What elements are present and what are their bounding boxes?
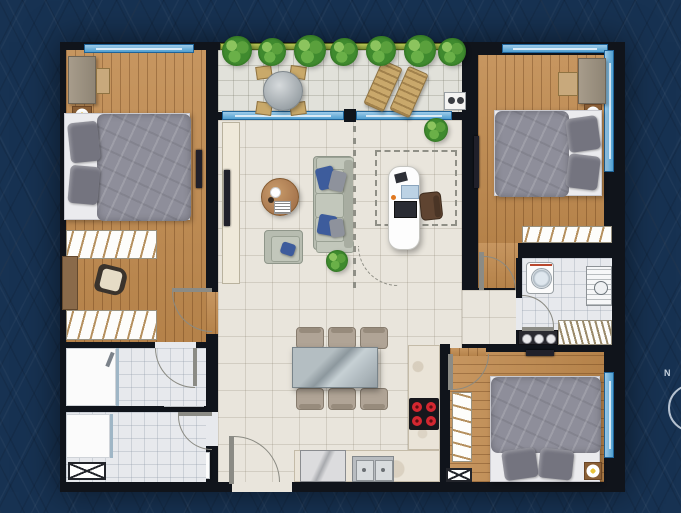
bedroom-1-bench bbox=[96, 68, 110, 94]
bedroom-3-wardrobe bbox=[452, 392, 472, 462]
drying-rack bbox=[558, 320, 612, 345]
master-wardrobe-hatched bbox=[522, 226, 612, 243]
compass-ring bbox=[668, 384, 681, 432]
counter-ring bbox=[546, 334, 556, 344]
bathroom-2-shaft-box bbox=[68, 462, 106, 480]
sink-drain bbox=[362, 468, 366, 472]
cooktop-burner bbox=[412, 416, 422, 426]
living-room-tv bbox=[224, 170, 230, 226]
chair-backrest bbox=[433, 195, 441, 218]
master-bed bbox=[494, 110, 602, 196]
desk-camera bbox=[394, 172, 408, 184]
compass-north-label: N bbox=[664, 368, 671, 378]
coffee-table-book bbox=[274, 201, 291, 214]
bedroom-1-wardrobe-cabinet bbox=[68, 56, 96, 104]
desk-deco bbox=[391, 195, 396, 200]
utility-door-leaf bbox=[522, 327, 554, 331]
sofa-gray-pillow bbox=[329, 218, 345, 238]
bedroom-1-tv bbox=[196, 150, 202, 188]
floor-plan-canvas: N bbox=[0, 0, 681, 513]
balcony-slider-left bbox=[222, 111, 344, 120]
washing-machine-door bbox=[531, 268, 552, 289]
bathroom-1-glass-screen bbox=[116, 348, 119, 406]
dining-chair bbox=[296, 388, 324, 410]
cooktop-burner bbox=[412, 402, 422, 412]
master-pillow bbox=[565, 153, 601, 191]
wall-unit-fan bbox=[594, 281, 608, 295]
bedroom-3-window bbox=[604, 372, 614, 458]
master-pillow bbox=[565, 115, 601, 153]
bedroom-3-pillow bbox=[538, 447, 575, 480]
master-top-window bbox=[502, 44, 608, 53]
bedroom-1-bed bbox=[64, 113, 190, 220]
balcony-bbq-point bbox=[444, 92, 466, 110]
bbq-burner bbox=[457, 97, 464, 104]
bathroom-2-glass-screen bbox=[110, 414, 113, 458]
desk-laptop bbox=[394, 201, 417, 218]
bedroom-1-pillow bbox=[67, 165, 100, 205]
bedroom-1-wardrobe-b bbox=[66, 310, 157, 340]
utility-counter bbox=[518, 330, 558, 345]
bedroom-3-shaft-box bbox=[446, 468, 472, 482]
bathroom-2-shower-tray bbox=[66, 414, 110, 458]
bedroom-3-blanket bbox=[491, 377, 601, 453]
flex-room-dashed-partition bbox=[353, 122, 356, 288]
master-tv bbox=[474, 136, 479, 188]
entrance-opening bbox=[232, 482, 292, 492]
dining-chair bbox=[360, 327, 388, 349]
cooktop-burner bbox=[426, 416, 436, 426]
bbq-burner bbox=[448, 97, 455, 104]
dining-table bbox=[292, 347, 378, 388]
dining-chair bbox=[360, 388, 388, 410]
washing-machine-panel bbox=[530, 264, 552, 266]
bedroom-1-pillow bbox=[67, 121, 101, 164]
sofa bbox=[313, 156, 353, 250]
balcony-round-table bbox=[263, 71, 303, 111]
bedroom-1-desk bbox=[62, 256, 78, 310]
cooktop bbox=[409, 398, 439, 430]
counter-ring bbox=[522, 334, 532, 344]
dining-chair bbox=[296, 327, 324, 349]
counter-ring bbox=[534, 334, 544, 344]
bedroom-1-wardrobe-a bbox=[66, 230, 157, 259]
bedroom-3-tv bbox=[526, 350, 554, 356]
armchair bbox=[264, 230, 303, 264]
dining-chair bbox=[328, 388, 356, 410]
dining-chair bbox=[328, 327, 356, 349]
bedroom-1-blanket bbox=[97, 114, 191, 221]
utility-wall-unit bbox=[586, 266, 612, 306]
washing-machine bbox=[526, 262, 554, 294]
bedroom-1-window bbox=[84, 44, 194, 53]
master-dresser-stool bbox=[558, 72, 578, 96]
bedroom-3-nightstand-lamp bbox=[584, 462, 602, 480]
cooktop-burner bbox=[426, 402, 436, 412]
chair-seat bbox=[99, 268, 123, 292]
bedroom-3-pillow bbox=[501, 447, 539, 481]
master-blanket bbox=[495, 111, 569, 197]
desk-papers bbox=[401, 185, 419, 199]
flex-room-chair bbox=[419, 191, 444, 221]
balcony-door-post bbox=[344, 109, 356, 122]
double-sink bbox=[352, 456, 394, 482]
master-wardrobe-cabinet bbox=[578, 58, 606, 104]
coffee-table bbox=[261, 178, 299, 216]
kitchen-hall-floor bbox=[462, 290, 516, 344]
fridge bbox=[300, 450, 346, 482]
apartment-plan bbox=[60, 42, 625, 492]
sink-drain bbox=[381, 468, 385, 472]
flex-room-desk bbox=[388, 166, 420, 250]
